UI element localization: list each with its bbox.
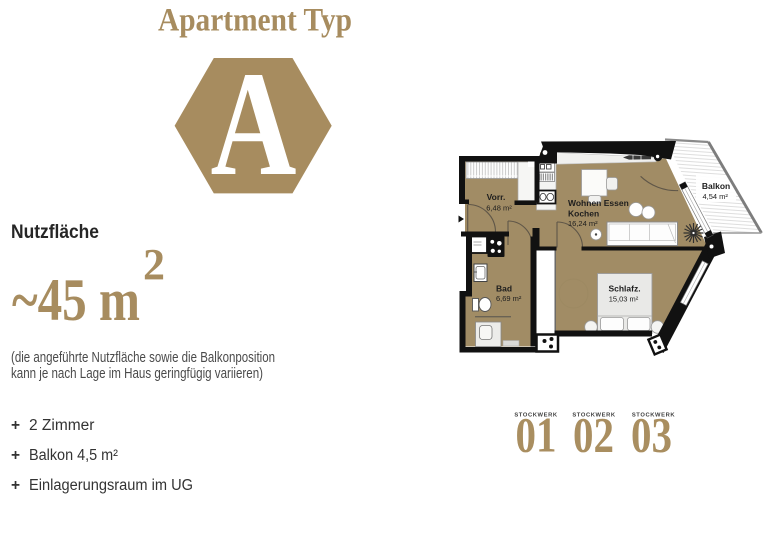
svg-text:Apartment Typ: Apartment Typ bbox=[158, 3, 352, 39]
svg-text:6,48 m²: 6,48 m² bbox=[486, 204, 512, 213]
svg-text:~45 m: ~45 m bbox=[12, 267, 140, 333]
svg-text:4,54 m²: 4,54 m² bbox=[703, 192, 729, 201]
svg-text:Balkon: Balkon bbox=[702, 181, 730, 191]
svg-text:(die angeführte Nutzfläche sow: (die angeführte Nutzfläche sowie die Bal… bbox=[11, 350, 275, 366]
svg-text:Schlafz.: Schlafz. bbox=[608, 283, 640, 293]
svg-text:Vorr.: Vorr. bbox=[487, 192, 506, 202]
svg-text:+: + bbox=[11, 477, 20, 494]
svg-text:6,69 m²: 6,69 m² bbox=[496, 294, 522, 303]
svg-text:Kochen: Kochen bbox=[568, 208, 599, 218]
svg-text:+: + bbox=[11, 417, 20, 434]
svg-text:2: 2 bbox=[143, 240, 165, 289]
svg-text:16,24 m²: 16,24 m² bbox=[568, 219, 598, 228]
svg-text:2 Zimmer: 2 Zimmer bbox=[29, 417, 94, 434]
svg-text:Balkon 4,5 m²: Balkon 4,5 m² bbox=[29, 447, 118, 464]
svg-text:Wohnen Essen: Wohnen Essen bbox=[568, 198, 629, 208]
svg-text:kann je nach Lage im Haus geri: kann je nach Lage im Haus geringfügig va… bbox=[11, 366, 263, 382]
svg-text:01: 01 bbox=[516, 407, 557, 463]
svg-text:03: 03 bbox=[631, 407, 672, 463]
svg-text:Einlagerungsraum im UG: Einlagerungsraum im UG bbox=[29, 477, 193, 494]
svg-text:A: A bbox=[211, 41, 297, 207]
svg-text:Bad: Bad bbox=[496, 283, 512, 293]
svg-text:02: 02 bbox=[573, 407, 614, 463]
svg-text:15,03 m²: 15,03 m² bbox=[609, 294, 639, 303]
svg-text:+: + bbox=[11, 447, 20, 464]
svg-text:Nutzfläche: Nutzfläche bbox=[11, 221, 99, 243]
